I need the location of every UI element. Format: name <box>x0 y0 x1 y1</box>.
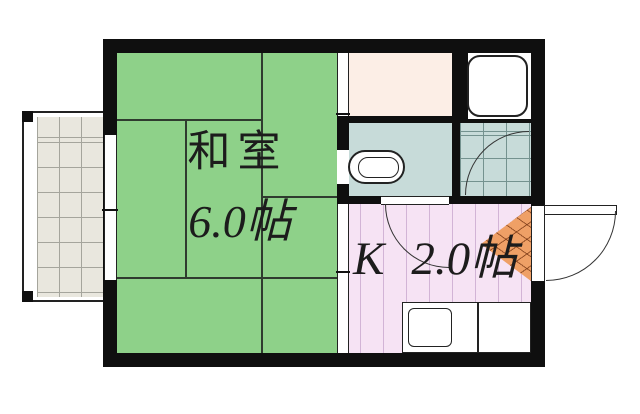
wall-top <box>103 39 545 53</box>
closet-room <box>349 53 453 116</box>
wall-closet-bath <box>337 116 453 123</box>
closet-door-tick <box>336 113 350 115</box>
washing-machine-pan-icon <box>467 55 528 117</box>
wall-right-upper <box>531 39 545 206</box>
kitchen-size: 2.0帖 <box>411 233 517 285</box>
balcony-corner-post <box>22 111 33 122</box>
wall-bottom <box>103 353 545 367</box>
wall-laundry-tiled <box>452 119 531 123</box>
tatami-line <box>117 119 262 121</box>
japanese-room-name: 和室 <box>175 131 300 174</box>
window-center-tick <box>102 209 118 211</box>
wall-tiled-left <box>452 119 460 196</box>
japanese-room-size: 6.0帖 <box>165 199 315 245</box>
kitchen-door-tick <box>336 271 350 273</box>
door-swing-arc <box>546 211 616 281</box>
balcony-floor <box>37 117 103 297</box>
tatami-line <box>117 277 337 279</box>
entrance-opening <box>531 206 545 281</box>
closet-sliding-door <box>337 53 349 116</box>
kitchen-sink-icon <box>408 308 452 347</box>
kitchen-abbr: K <box>353 233 384 285</box>
balcony-window <box>104 135 117 280</box>
balcony-corner-post <box>22 291 33 302</box>
bathtub-inner <box>358 157 399 178</box>
wall-center-vertical <box>452 53 468 119</box>
floor-plan: 和室 6.0帖 K2.0帖 <box>0 0 640 414</box>
kitchen-sliding-door <box>337 204 349 353</box>
kitchen-label: K2.0帖 <box>353 236 517 283</box>
counter-divider <box>477 302 479 353</box>
wall-right-lower <box>531 281 545 367</box>
